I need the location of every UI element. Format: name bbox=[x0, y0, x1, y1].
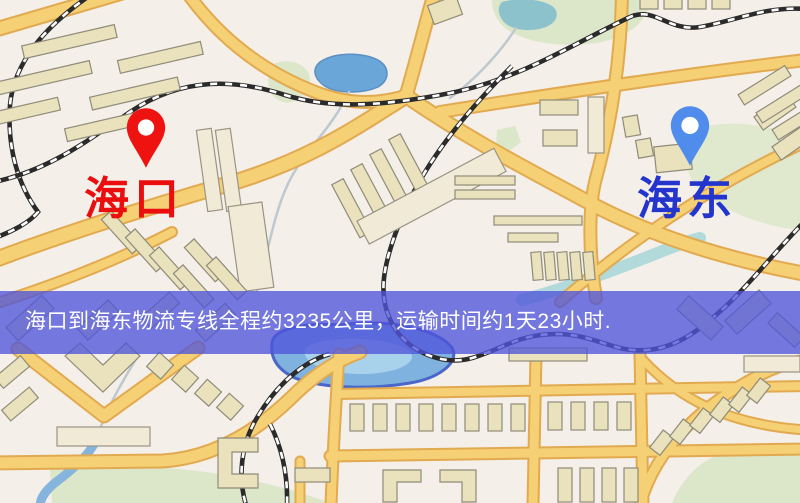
destination-label: 海东 bbox=[637, 176, 737, 221]
destination-pin[interactable] bbox=[667, 103, 713, 169]
origin-label: 海口 bbox=[84, 176, 184, 221]
destination-pin-icon bbox=[667, 103, 713, 169]
route-info-banner: 海口到海东物流专线全程约3235公里，运输时间约1天23小时. bbox=[0, 291, 800, 354]
map-canvas bbox=[0, 0, 800, 503]
origin-pin-icon bbox=[123, 105, 169, 171]
route-info-text: 海口到海东物流专线全程约3235公里，运输时间约1天23小时. bbox=[25, 305, 611, 335]
map-view[interactable]: 海口 海东 海口到海东物流专线全程约3235公里，运输时间约1天23小时. bbox=[0, 0, 800, 503]
origin-pin[interactable] bbox=[123, 105, 169, 171]
